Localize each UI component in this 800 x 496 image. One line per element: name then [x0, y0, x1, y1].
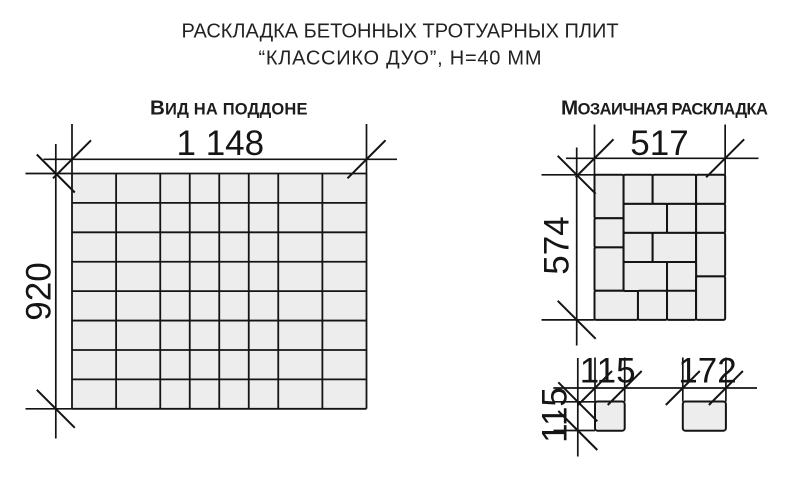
svg-text:115: 115	[580, 352, 636, 391]
svg-text:“КЛАССИКО ДУО”, Н=40 ММ: “КЛАССИКО ДУО”, Н=40 ММ	[259, 47, 542, 69]
svg-text:115: 115	[536, 387, 575, 443]
svg-text:МОЗАИЧНАЯ РАСКЛАДКА: МОЗАИЧНАЯ РАСКЛАДКА	[561, 97, 768, 120]
svg-text:ВИД НА ПОДДОНЕ: ВИД НА ПОДДОНЕ	[150, 97, 308, 120]
svg-text:РАСКЛАДКА БЕТОННЫХ ТРОТУАРНЫХ: РАСКЛАДКА БЕТОННЫХ ТРОТУАРНЫХ ПЛИТ	[181, 20, 618, 42]
svg-text:517: 517	[630, 124, 688, 163]
svg-text:920: 920	[19, 262, 58, 320]
svg-text:172: 172	[678, 352, 736, 391]
svg-text:574: 574	[537, 216, 576, 274]
svg-text:1 148: 1 148	[177, 124, 265, 163]
